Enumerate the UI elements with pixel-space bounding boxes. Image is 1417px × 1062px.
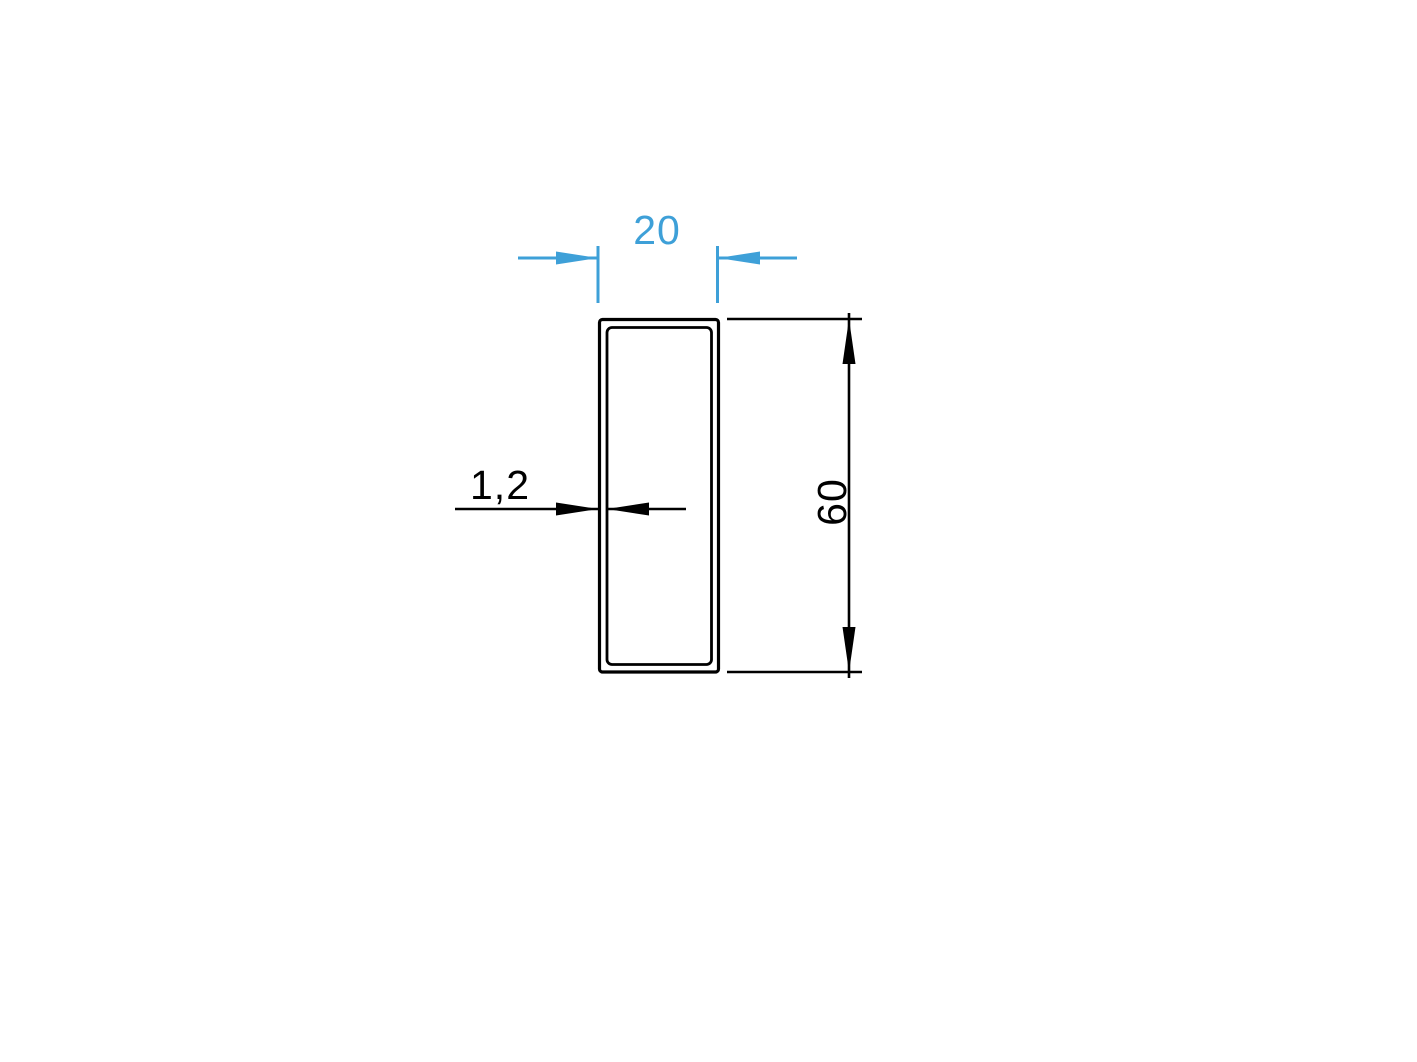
drawing-canvas: 20 60 1,2: [0, 0, 1417, 1062]
thickness-arrow-right-icon: [607, 503, 649, 516]
width-arrow-left-icon: [556, 252, 598, 265]
height-dimension: 60: [727, 313, 862, 678]
width-dimension: 20: [518, 207, 797, 303]
thickness-dimension: 1,2: [455, 462, 686, 516]
height-arrow-down-icon: [843, 627, 856, 672]
width-dimension-label: 20: [633, 207, 681, 253]
height-dimension-label: 60: [809, 478, 855, 526]
technical-drawing: 20 60 1,2: [0, 0, 1417, 1062]
height-arrow-up-icon: [843, 319, 856, 364]
profile-outer-contour: [600, 320, 719, 673]
thickness-arrow-left-icon: [556, 503, 598, 516]
width-arrow-right-icon: [718, 252, 760, 265]
profile-inner-contour: [607, 328, 712, 665]
profile-cross-section: [600, 320, 719, 673]
thickness-dimension-label: 1,2: [470, 462, 530, 508]
